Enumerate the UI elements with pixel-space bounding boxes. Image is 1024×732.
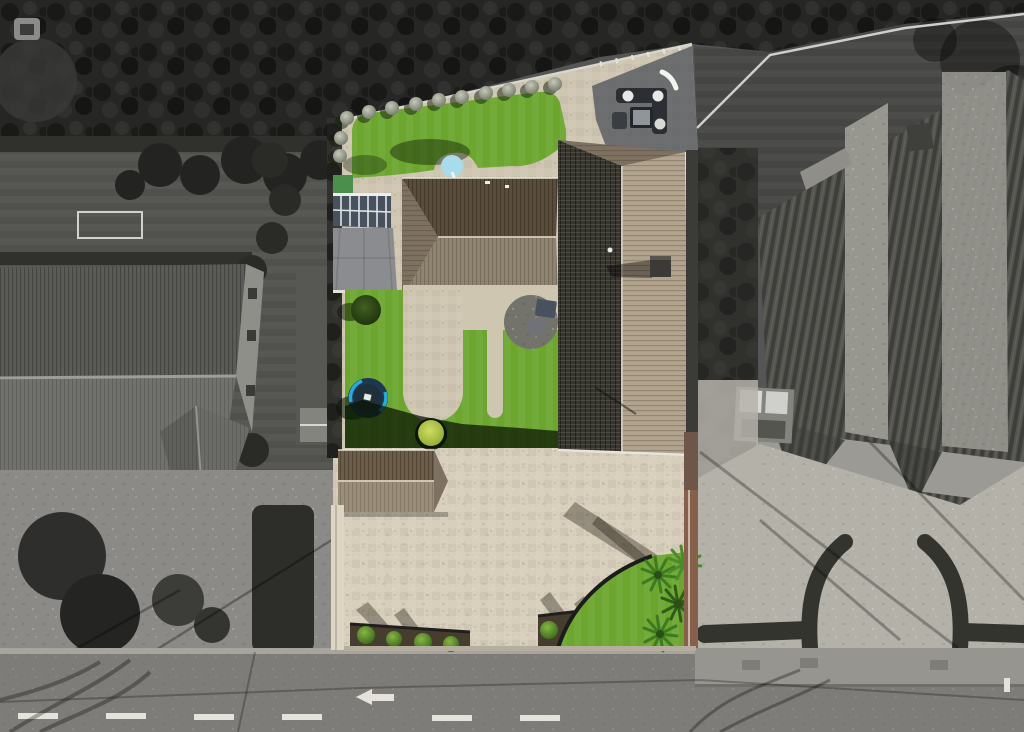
gray-flat-roof: [333, 228, 397, 293]
roof-vent: [608, 248, 613, 253]
brick-boundary-wall: [684, 490, 698, 648]
aerial-photo: [0, 0, 1024, 732]
brick-wall-upper: [684, 432, 698, 494]
cushion: [623, 91, 634, 102]
lime-bush: [418, 420, 444, 446]
garage-shadow: [338, 512, 448, 517]
cushion: [653, 91, 664, 102]
round-bush: [351, 295, 381, 325]
right-house-chimney: [906, 122, 933, 151]
green-cold-frame: [333, 175, 353, 193]
garage-outbuilding: [338, 450, 448, 517]
cushion: [655, 119, 666, 130]
garden-structure-top: [20, 24, 34, 35]
cream-boundary-wall: [331, 505, 344, 650]
hot-tub: [535, 299, 557, 319]
left-dark-hedge-block: [252, 505, 314, 653]
garden-table-top: [633, 110, 650, 125]
path-tongue-2: [487, 290, 503, 418]
left-hedge-row-2: [0, 252, 252, 265]
conservatory: [333, 193, 391, 228]
road-marking-small: [1004, 678, 1010, 692]
main-house-north-south-wing: [558, 140, 690, 455]
patio-step: [528, 320, 545, 334]
frontage-kerb: [344, 646, 696, 651]
side-passage-shadow: [686, 150, 698, 432]
ridge-line: [0, 376, 236, 378]
subject-property: [327, 44, 701, 652]
main-house-east-west-wing: [402, 178, 558, 298]
gravel-strip: [698, 380, 758, 480]
garden-bench: [612, 112, 627, 129]
